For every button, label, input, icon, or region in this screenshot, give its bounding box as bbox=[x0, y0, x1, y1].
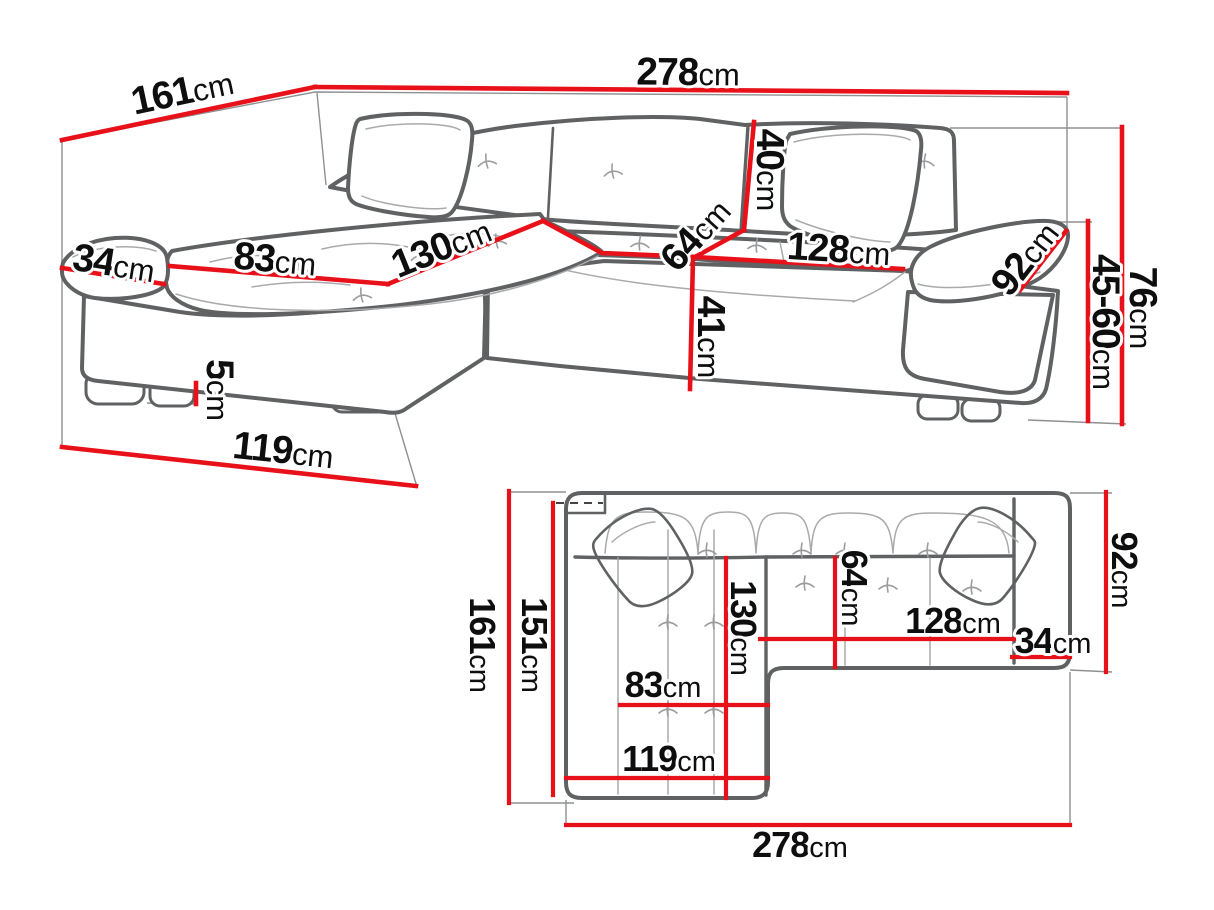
dim-label-278: 278cm bbox=[636, 51, 740, 95]
dim-value: 151 bbox=[514, 597, 555, 655]
dim-value: 41 bbox=[689, 296, 732, 338]
dim-value: 5 bbox=[198, 359, 241, 380]
pillow-left bbox=[348, 114, 472, 217]
dim-unit: cm bbox=[291, 436, 336, 475]
dim-unit: cm bbox=[1105, 570, 1137, 609]
dim-value: 130 bbox=[723, 580, 764, 637]
dim-value: 64 bbox=[834, 550, 875, 589]
dim-value: 128 bbox=[786, 225, 851, 272]
dim-unit: cm bbox=[848, 235, 891, 272]
dim-unit: cm bbox=[1086, 349, 1121, 390]
dim-unit: cm bbox=[463, 654, 495, 693]
dim-unit: cm bbox=[677, 746, 716, 778]
dim-unit: cm bbox=[200, 380, 235, 421]
dim-unit: cm bbox=[724, 637, 756, 676]
dim-value: 161 bbox=[462, 597, 503, 655]
dim-unit: cm bbox=[111, 248, 157, 289]
dim-unit: cm bbox=[663, 672, 702, 704]
sofa-dimension-diagram: 161cm 278cm 34cm 83cm 130cm 40cm 64cm 12… bbox=[0, 0, 1214, 910]
dim-value: 83 bbox=[625, 664, 663, 705]
dim-value: 40 bbox=[748, 129, 791, 171]
dim-value: 45-60 bbox=[1084, 254, 1127, 349]
dim-value: 34 bbox=[1015, 620, 1054, 661]
diagram-canvas: 161cm 278cm 34cm 83cm 130cm 40cm 64cm 12… bbox=[0, 0, 1214, 910]
dim-label-5: 5cm bbox=[198, 359, 241, 421]
dim-unit: cm bbox=[698, 57, 740, 92]
dim-value: 92 bbox=[1104, 532, 1145, 570]
dim-unit: cm bbox=[962, 608, 1001, 640]
dim-unit: cm bbox=[835, 588, 867, 627]
backrest-band-edge bbox=[575, 556, 1014, 558]
dim-label-45-60: 45-60cm bbox=[1084, 254, 1127, 390]
dim-value: 119 bbox=[622, 738, 677, 779]
dim-unit: cm bbox=[515, 654, 547, 693]
dim-unit: cm bbox=[1053, 628, 1092, 660]
dim-value: 278 bbox=[636, 51, 699, 95]
dim-value: 83 bbox=[232, 235, 277, 281]
dim-unit: cm bbox=[809, 832, 848, 864]
armrest-right-body bbox=[903, 292, 1053, 393]
dim-value: 119 bbox=[231, 424, 295, 473]
dim-unit: cm bbox=[1123, 308, 1158, 349]
dim-unit: cm bbox=[750, 170, 785, 211]
dim-label-40: 40cm bbox=[748, 129, 791, 212]
dim-unit: cm bbox=[691, 337, 726, 378]
dim-unit: cm bbox=[273, 244, 317, 282]
dim-label-41: 41cm bbox=[689, 296, 732, 379]
dim-value: 128 bbox=[905, 600, 962, 641]
dim-value: 278 bbox=[752, 824, 809, 865]
